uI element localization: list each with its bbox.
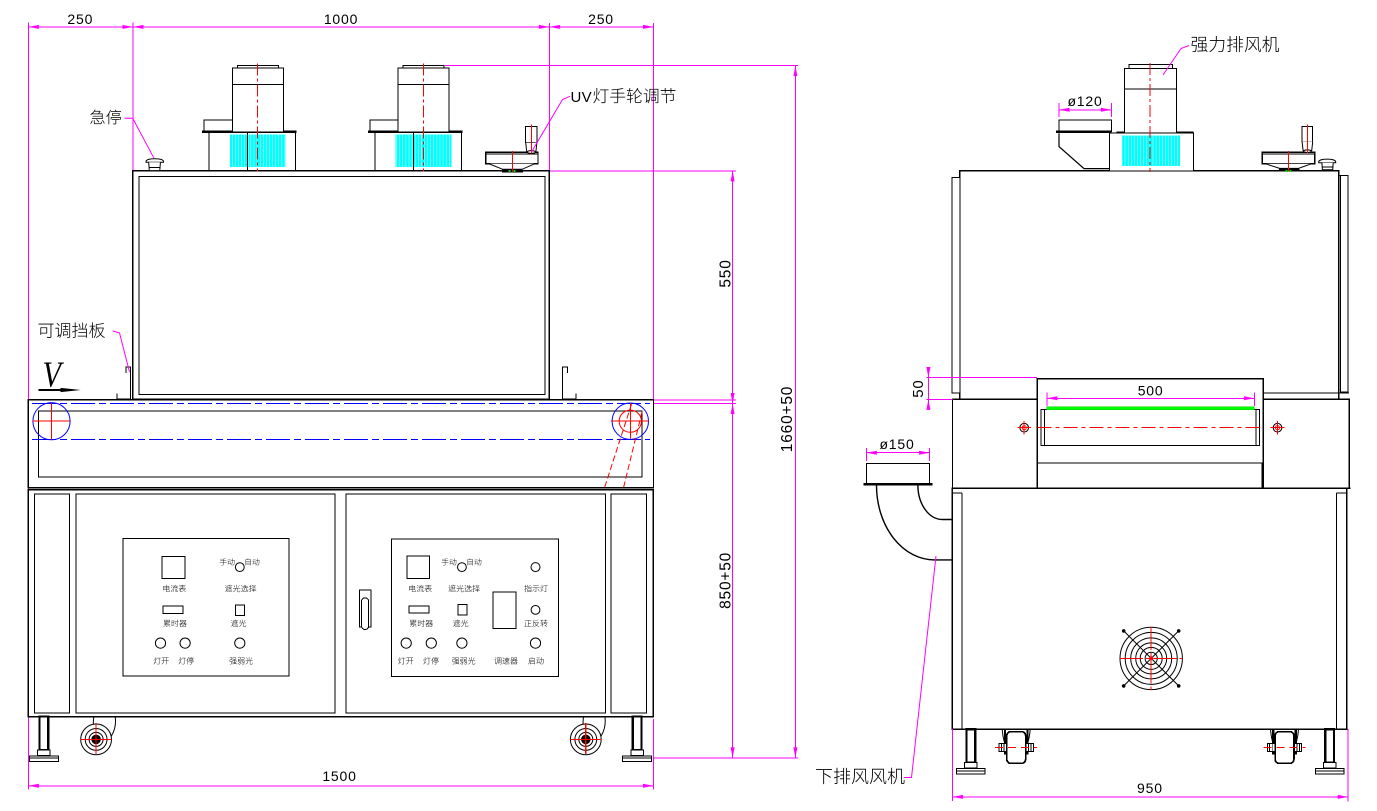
svg-text:ø120: ø120 bbox=[1067, 93, 1102, 109]
svg-text:250: 250 bbox=[67, 11, 93, 27]
svg-text:500: 500 bbox=[1138, 382, 1164, 398]
svg-text:950: 950 bbox=[1137, 780, 1163, 796]
svg-text:550: 550 bbox=[717, 259, 734, 287]
svg-text:ø150: ø150 bbox=[879, 436, 914, 452]
svg-text:1000: 1000 bbox=[324, 11, 358, 27]
svg-text:1660+50: 1660+50 bbox=[779, 386, 796, 452]
svg-text:50: 50 bbox=[910, 379, 927, 397]
svg-text:UV: UV bbox=[571, 89, 592, 106]
svg-text:250: 250 bbox=[588, 11, 614, 27]
svg-text:850+50: 850+50 bbox=[717, 552, 734, 609]
svg-text:1500: 1500 bbox=[322, 768, 356, 784]
